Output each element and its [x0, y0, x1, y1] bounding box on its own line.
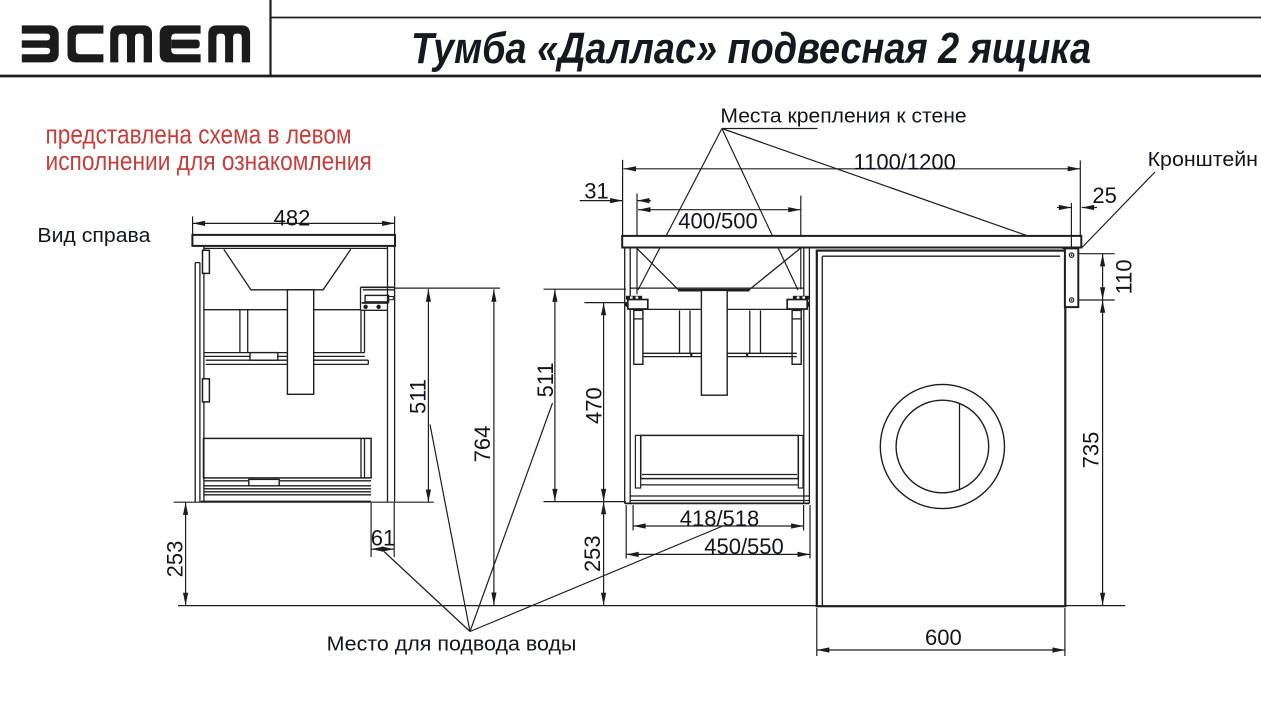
svg-text:600: 600: [925, 625, 962, 650]
svg-text:735: 735: [1079, 432, 1104, 469]
svg-text:Вид справа: Вид справа: [37, 224, 151, 247]
svg-text:61: 61: [371, 526, 395, 551]
svg-text:253: 253: [163, 541, 188, 578]
svg-text:253: 253: [580, 535, 605, 572]
svg-text:Места крепления к стене: Места крепления к стене: [720, 105, 966, 128]
svg-text:1100/1200: 1100/1200: [854, 149, 956, 174]
svg-text:Место для подвода воды: Место для подвода воды: [327, 633, 577, 656]
svg-text:Кронштейн: Кронштейн: [1148, 148, 1258, 171]
svg-text:представлена схема в левом: представлена схема в левом: [46, 120, 352, 150]
svg-text:25: 25: [1092, 183, 1116, 208]
svg-text:исполнении для ознакомления: исполнении для ознакомления: [46, 146, 372, 176]
svg-text:482: 482: [274, 205, 311, 230]
svg-text:511: 511: [533, 362, 558, 397]
svg-text:Тумба «Даллас» подвесная 2 ящи: Тумба «Даллас» подвесная 2 ящика: [411, 24, 1091, 73]
svg-text:31: 31: [584, 178, 608, 203]
svg-text:511: 511: [406, 379, 431, 414]
svg-text:110: 110: [1112, 259, 1137, 294]
svg-text:400/500: 400/500: [678, 209, 758, 234]
svg-text:450/550: 450/550: [704, 534, 784, 559]
svg-text:470: 470: [581, 387, 606, 424]
svg-text:764: 764: [470, 426, 495, 463]
